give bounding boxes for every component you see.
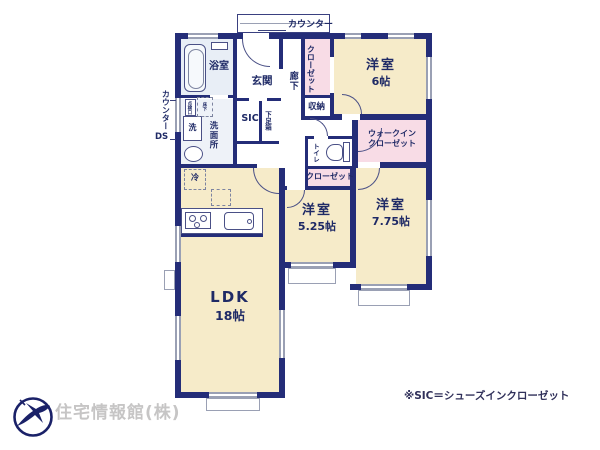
- window-ldk-right: [279, 310, 285, 358]
- terrace-step-ldk: [206, 398, 260, 411]
- room775-name: 洋室: [356, 198, 426, 215]
- sic-note: ※SIC＝シューズインクローゼット: [404, 390, 569, 404]
- counter-top-label: カウンター: [288, 20, 333, 32]
- door-opening-closet-room6: [330, 57, 334, 93]
- closet-north-label: クローゼット: [305, 44, 315, 94]
- toilet-tank-icon: [343, 142, 350, 162]
- window-room6-top-1: [345, 33, 361, 39]
- hallway-label: 廊下: [286, 60, 298, 102]
- ldk-label: LDK 18帖: [190, 288, 270, 324]
- faucet-icon: [247, 219, 252, 224]
- wall-wic-bottom: [380, 162, 432, 168]
- room6-name: 洋室: [343, 58, 419, 75]
- wall-genkan-sic-2: [267, 98, 281, 101]
- floor-hatch-outer-label: 床下: [201, 100, 207, 113]
- stove-burner: [200, 215, 207, 222]
- company-logo-bird-icon: [10, 392, 56, 438]
- genkan-label: 玄関: [245, 75, 279, 89]
- room525-name: 洋室: [285, 203, 349, 220]
- storage-label: 収納: [303, 102, 330, 113]
- leader-counter-top: [258, 30, 286, 31]
- window-775-right: [426, 200, 432, 256]
- wall-toilet-top-2: [328, 136, 352, 139]
- bath-shelf-icon: [211, 42, 228, 50]
- wall-room6-bottom-2: [360, 114, 432, 120]
- closet-mid-label: クローゼット: [306, 172, 352, 182]
- door-arc-toilet: [310, 118, 328, 136]
- kitchen-sink-icon: [224, 212, 254, 230]
- wall-room6-bottom-1: [330, 114, 342, 120]
- wall-525-top-1: [279, 186, 287, 190]
- wall-sic-bottom: [237, 141, 279, 144]
- room525-size: 5.25帖: [285, 220, 349, 234]
- ldk-name: LDK: [190, 288, 270, 308]
- window-ldk-left-2: [175, 316, 181, 360]
- sic-label: SIC: [238, 113, 262, 125]
- leader-ds: [170, 139, 176, 140]
- wic-label: ウォークイン クローゼット: [358, 129, 426, 150]
- fridge-label: 冷: [184, 173, 206, 183]
- shoe-box-label: 下足箱: [263, 104, 271, 138]
- washroom-label: 洗面所: [207, 110, 218, 160]
- washer-label: 洗: [183, 123, 202, 133]
- window-bath-top: [188, 33, 218, 39]
- room6-size: 6帖: [343, 75, 419, 89]
- ldk-size: 18帖: [190, 308, 270, 324]
- window-ldk-bottom: [209, 392, 257, 398]
- floor-hatch-inner-label: 点検口: [186, 100, 192, 115]
- side-step-ldk: [164, 270, 175, 290]
- stove-burner: [194, 222, 200, 228]
- wall-525-top-2: [305, 186, 352, 190]
- washroom-sink-icon: [184, 146, 203, 162]
- stove-burner: [189, 215, 196, 222]
- wall-genkan-hall: [279, 39, 283, 69]
- bath-label: 浴室: [203, 60, 235, 73]
- bathtub-inner: [188, 49, 204, 89]
- wic-label-line1: ウォークイン: [358, 129, 426, 139]
- wic-label-line2: クローゼット: [358, 139, 426, 149]
- duct-space-label: DS: [155, 132, 168, 143]
- wall-genkan-sic-1: [237, 98, 249, 101]
- company-name: 住宅情報館(株): [55, 402, 181, 424]
- company-logo: [10, 392, 56, 438]
- window-sill-775: [358, 290, 410, 306]
- floorplan-canvas: 浴室 玄関 廊下 クローゼット 洋室 6帖 収納 SIC 下足箱 洗 洗面所 点…: [0, 0, 600, 450]
- pantry-box: [211, 189, 231, 206]
- stove-icon: [185, 212, 211, 229]
- door-arc-entrance: [242, 39, 270, 67]
- toilet-bowl-icon: [326, 144, 343, 161]
- room775-size: 7.75帖: [356, 215, 426, 229]
- counter-left-label: カウンター: [160, 84, 170, 136]
- wall-toilet-top-1: [308, 136, 314, 139]
- counter-notch-washroom: [175, 98, 181, 132]
- wall-bath-right: [233, 39, 237, 164]
- window-775-bottom: [361, 284, 407, 290]
- window-sill-525: [288, 268, 336, 284]
- room775-label: 洋室 7.75帖: [356, 198, 426, 229]
- toilet-label: トイレ: [311, 141, 319, 165]
- leader-counter-left: [170, 100, 176, 101]
- window-room6-top-2: [388, 33, 414, 39]
- room525-label: 洋室 5.25帖: [285, 203, 349, 234]
- wall-closet-mid-top: [305, 166, 352, 169]
- room6-label: 洋室 6帖: [343, 58, 419, 89]
- wall-ldk-top: [175, 164, 257, 168]
- window-room6-right: [426, 57, 432, 99]
- window-525-bottom: [291, 262, 333, 268]
